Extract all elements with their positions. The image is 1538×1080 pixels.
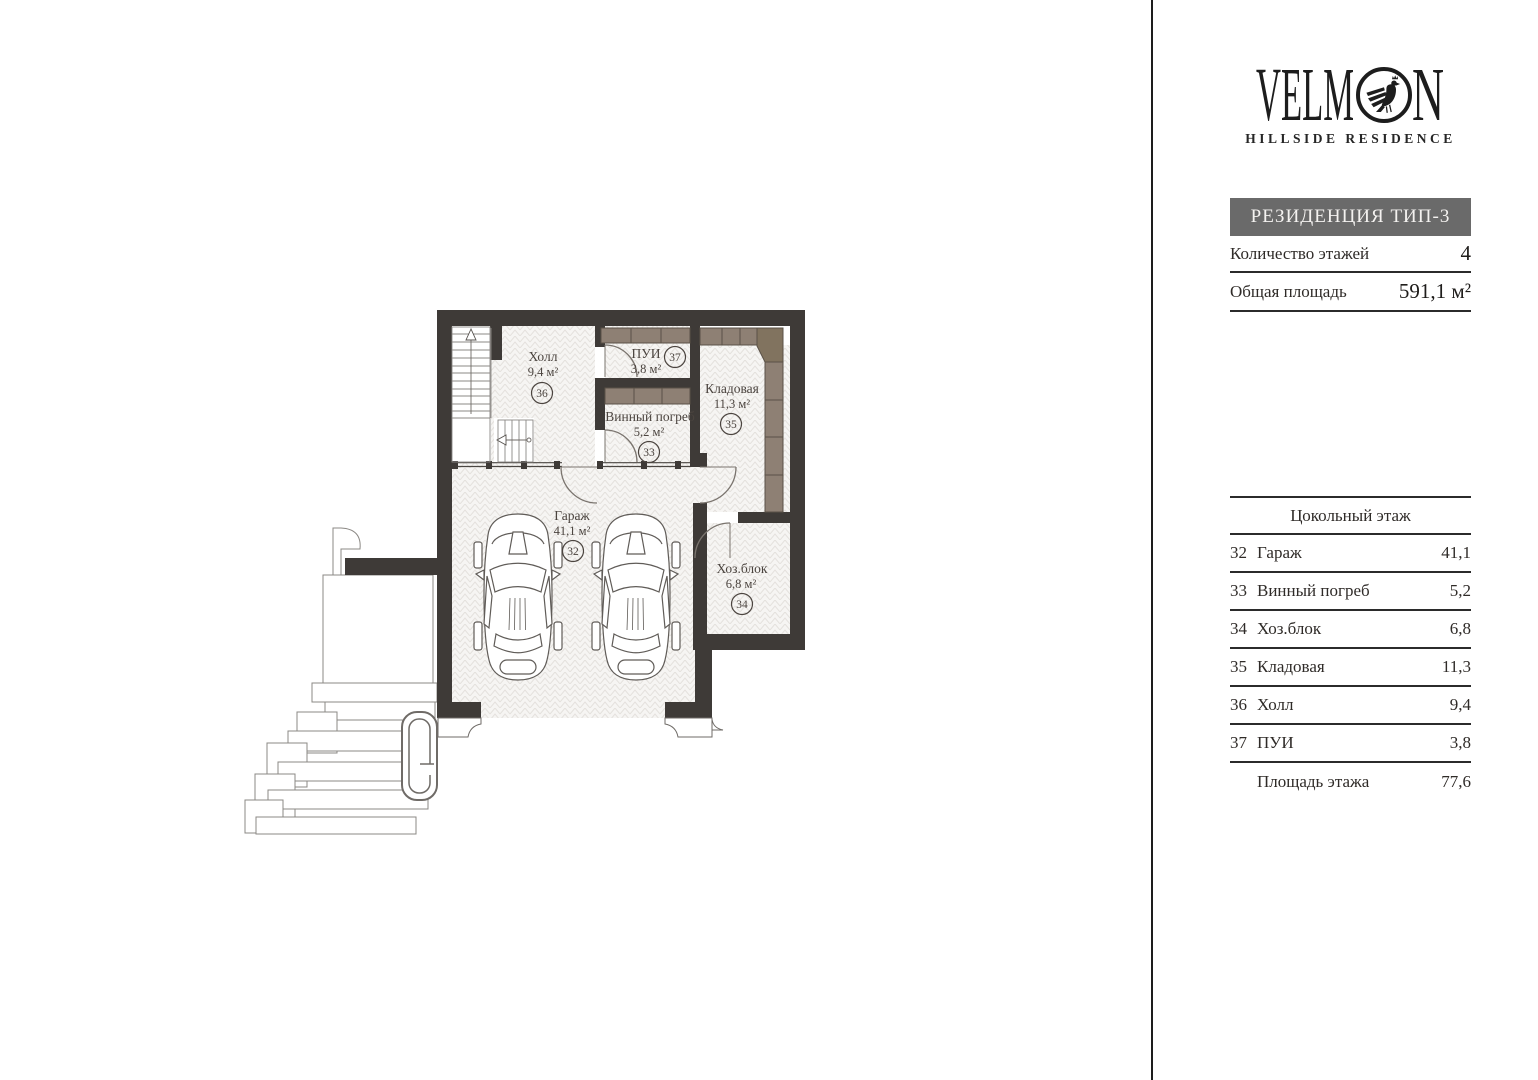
svg-text:41,1 м²: 41,1 м²	[554, 524, 591, 538]
brand-left: VELM	[1256, 66, 1354, 124]
svg-text:11,3 м²: 11,3 м²	[714, 397, 750, 411]
svg-text:5,2 м²: 5,2 м²	[634, 425, 665, 439]
svg-text:6,8 м²: 6,8 м²	[726, 577, 757, 591]
stair-railing	[402, 712, 437, 800]
svg-text:Хоз.блок: Хоз.блок	[717, 561, 768, 576]
room-number: 33	[1230, 581, 1257, 601]
room-name: Винный погреб	[1257, 581, 1450, 601]
info-row-total-area: Общая площадь 591,1 м²	[1230, 273, 1471, 312]
floor-area-value: 77,6	[1441, 772, 1471, 792]
room-name: Гараж	[1257, 543, 1441, 563]
legend-row: 36 Холл 9,4	[1230, 687, 1471, 725]
storage-cabinet-top	[700, 328, 757, 345]
svg-text:Гараж: Гараж	[554, 508, 590, 523]
room-area: 6,8	[1450, 619, 1471, 639]
vertical-divider	[1151, 0, 1153, 1080]
room-area: 9,4	[1450, 695, 1471, 715]
floors-value: 4	[1461, 241, 1472, 266]
room-name: Кладовая	[1257, 657, 1442, 677]
room-name: Хоз.блок	[1257, 619, 1450, 639]
legend-row: 34 Хоз.блок 6,8	[1230, 611, 1471, 649]
brochure-page: Холл 9,4 м² 36 ПУИ 3,8 м² 37 Кладовая 11…	[0, 0, 1538, 1080]
brand-logo-svg: VELM N	[1256, 66, 1446, 124]
room-legend-table: Цокольный этаж 32 Гараж 41,1 33 Винный п…	[1230, 496, 1471, 801]
total-area-label: Общая площадь	[1230, 282, 1347, 302]
residence-type-label: РЕЗИДЕНЦИЯ ТИП-3	[1251, 206, 1451, 228]
wine-cabinet	[605, 388, 690, 404]
floor-title: Цокольный этаж	[1230, 498, 1471, 535]
svg-text:37: 37	[669, 352, 681, 364]
room-number: 35	[1230, 657, 1257, 677]
residence-info: Количество этажей 4 Общая площадь 591,1 …	[1230, 236, 1471, 312]
terrace	[323, 575, 433, 683]
total-area-value: 591,1 м²	[1399, 279, 1471, 304]
brand-subtitle: HILLSIDE RESIDENCE	[1230, 131, 1471, 147]
legend-row: 33 Винный погреб 5,2	[1230, 573, 1471, 611]
legend-row: 32 Гараж 41,1	[1230, 535, 1471, 573]
room-name: ПУИ	[1257, 733, 1450, 753]
legend-row: 37 ПУИ 3,8	[1230, 725, 1471, 763]
room-number: 34	[1230, 619, 1257, 639]
terrace-wall	[345, 558, 437, 575]
svg-text:3,8 м²: 3,8 м²	[631, 362, 662, 376]
room-number: 37	[1230, 733, 1257, 753]
svg-text:9,4 м²: 9,4 м²	[528, 365, 559, 379]
svg-text:34: 34	[736, 599, 748, 611]
svg-text:Холл: Холл	[529, 349, 558, 364]
brand-logo: VELM N	[1230, 66, 1471, 129]
svg-text:36: 36	[536, 388, 548, 400]
room-area: 41,1	[1441, 543, 1471, 563]
svg-text:32: 32	[567, 546, 579, 558]
floors-label: Количество этажей	[1230, 244, 1369, 264]
floor-area-label: Площадь этажа	[1257, 772, 1441, 792]
room-number: 36	[1230, 695, 1257, 715]
room-area: 5,2	[1450, 581, 1471, 601]
svg-text:35: 35	[725, 419, 737, 431]
pui-cabinet	[601, 328, 690, 343]
room-name: Холл	[1257, 695, 1450, 715]
svg-text:Кладовая: Кладовая	[705, 381, 759, 396]
room-area: 11,3	[1442, 657, 1471, 677]
legend-summary-row: 00 Площадь этажа 77,6	[1230, 763, 1471, 801]
room-area: 3,8	[1450, 733, 1471, 753]
svg-text:ПУИ: ПУИ	[631, 346, 660, 361]
room-number: 32	[1230, 543, 1257, 563]
bird-icon	[1366, 75, 1400, 113]
svg-text:33: 33	[643, 447, 655, 459]
residence-type-header: РЕЗИДЕНЦИЯ ТИП-3	[1230, 198, 1471, 236]
svg-text:Винный погреб: Винный погреб	[605, 409, 695, 424]
pilaster-bases	[438, 718, 723, 737]
legend-row: 35 Кладовая 11,3	[1230, 649, 1471, 687]
info-row-floors: Количество этажей 4	[1230, 236, 1471, 273]
brand-right: N	[1412, 66, 1444, 124]
